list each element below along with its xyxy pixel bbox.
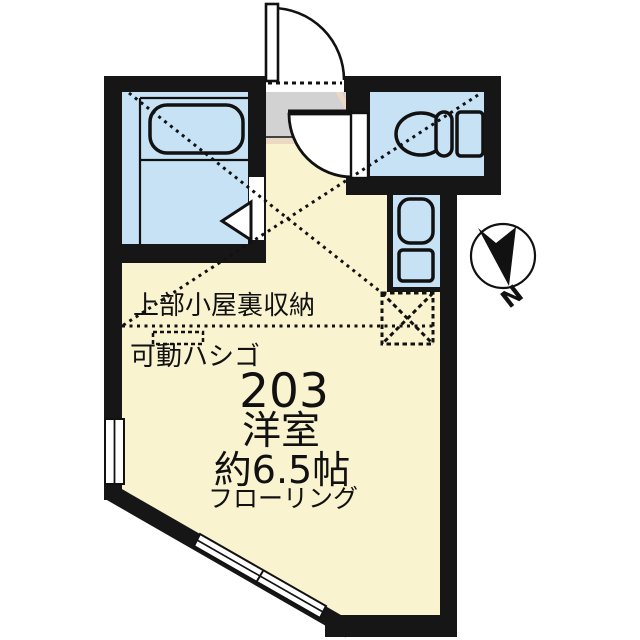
wall-right (440, 176, 457, 637)
toilet-tank (457, 112, 483, 156)
kitchen-alcove (387, 186, 441, 292)
toilet-seat (436, 112, 452, 156)
wall-below-toilet (346, 176, 501, 195)
room-door-leaf-open (351, 113, 368, 178)
floor-plan-drawing: N 上部小屋裏収納 可動ハシゴ 203 洋室 約6.5帖 フローリング (0, 0, 640, 640)
attic-storage-label: 上部小屋裏収納 (133, 291, 315, 321)
compass: N (471, 224, 535, 314)
toilet-room (370, 92, 486, 177)
entrance-door (266, 4, 344, 92)
entrance-door-arc (272, 8, 344, 80)
wall-bath-bottom (104, 244, 266, 263)
entrance-door-leaf (266, 4, 278, 81)
floor-plan: N 上部小屋裏収納 可動ハシゴ 203 洋室 約6.5帖 フローリング (0, 0, 640, 640)
flooring-label: フローリング (208, 484, 358, 513)
